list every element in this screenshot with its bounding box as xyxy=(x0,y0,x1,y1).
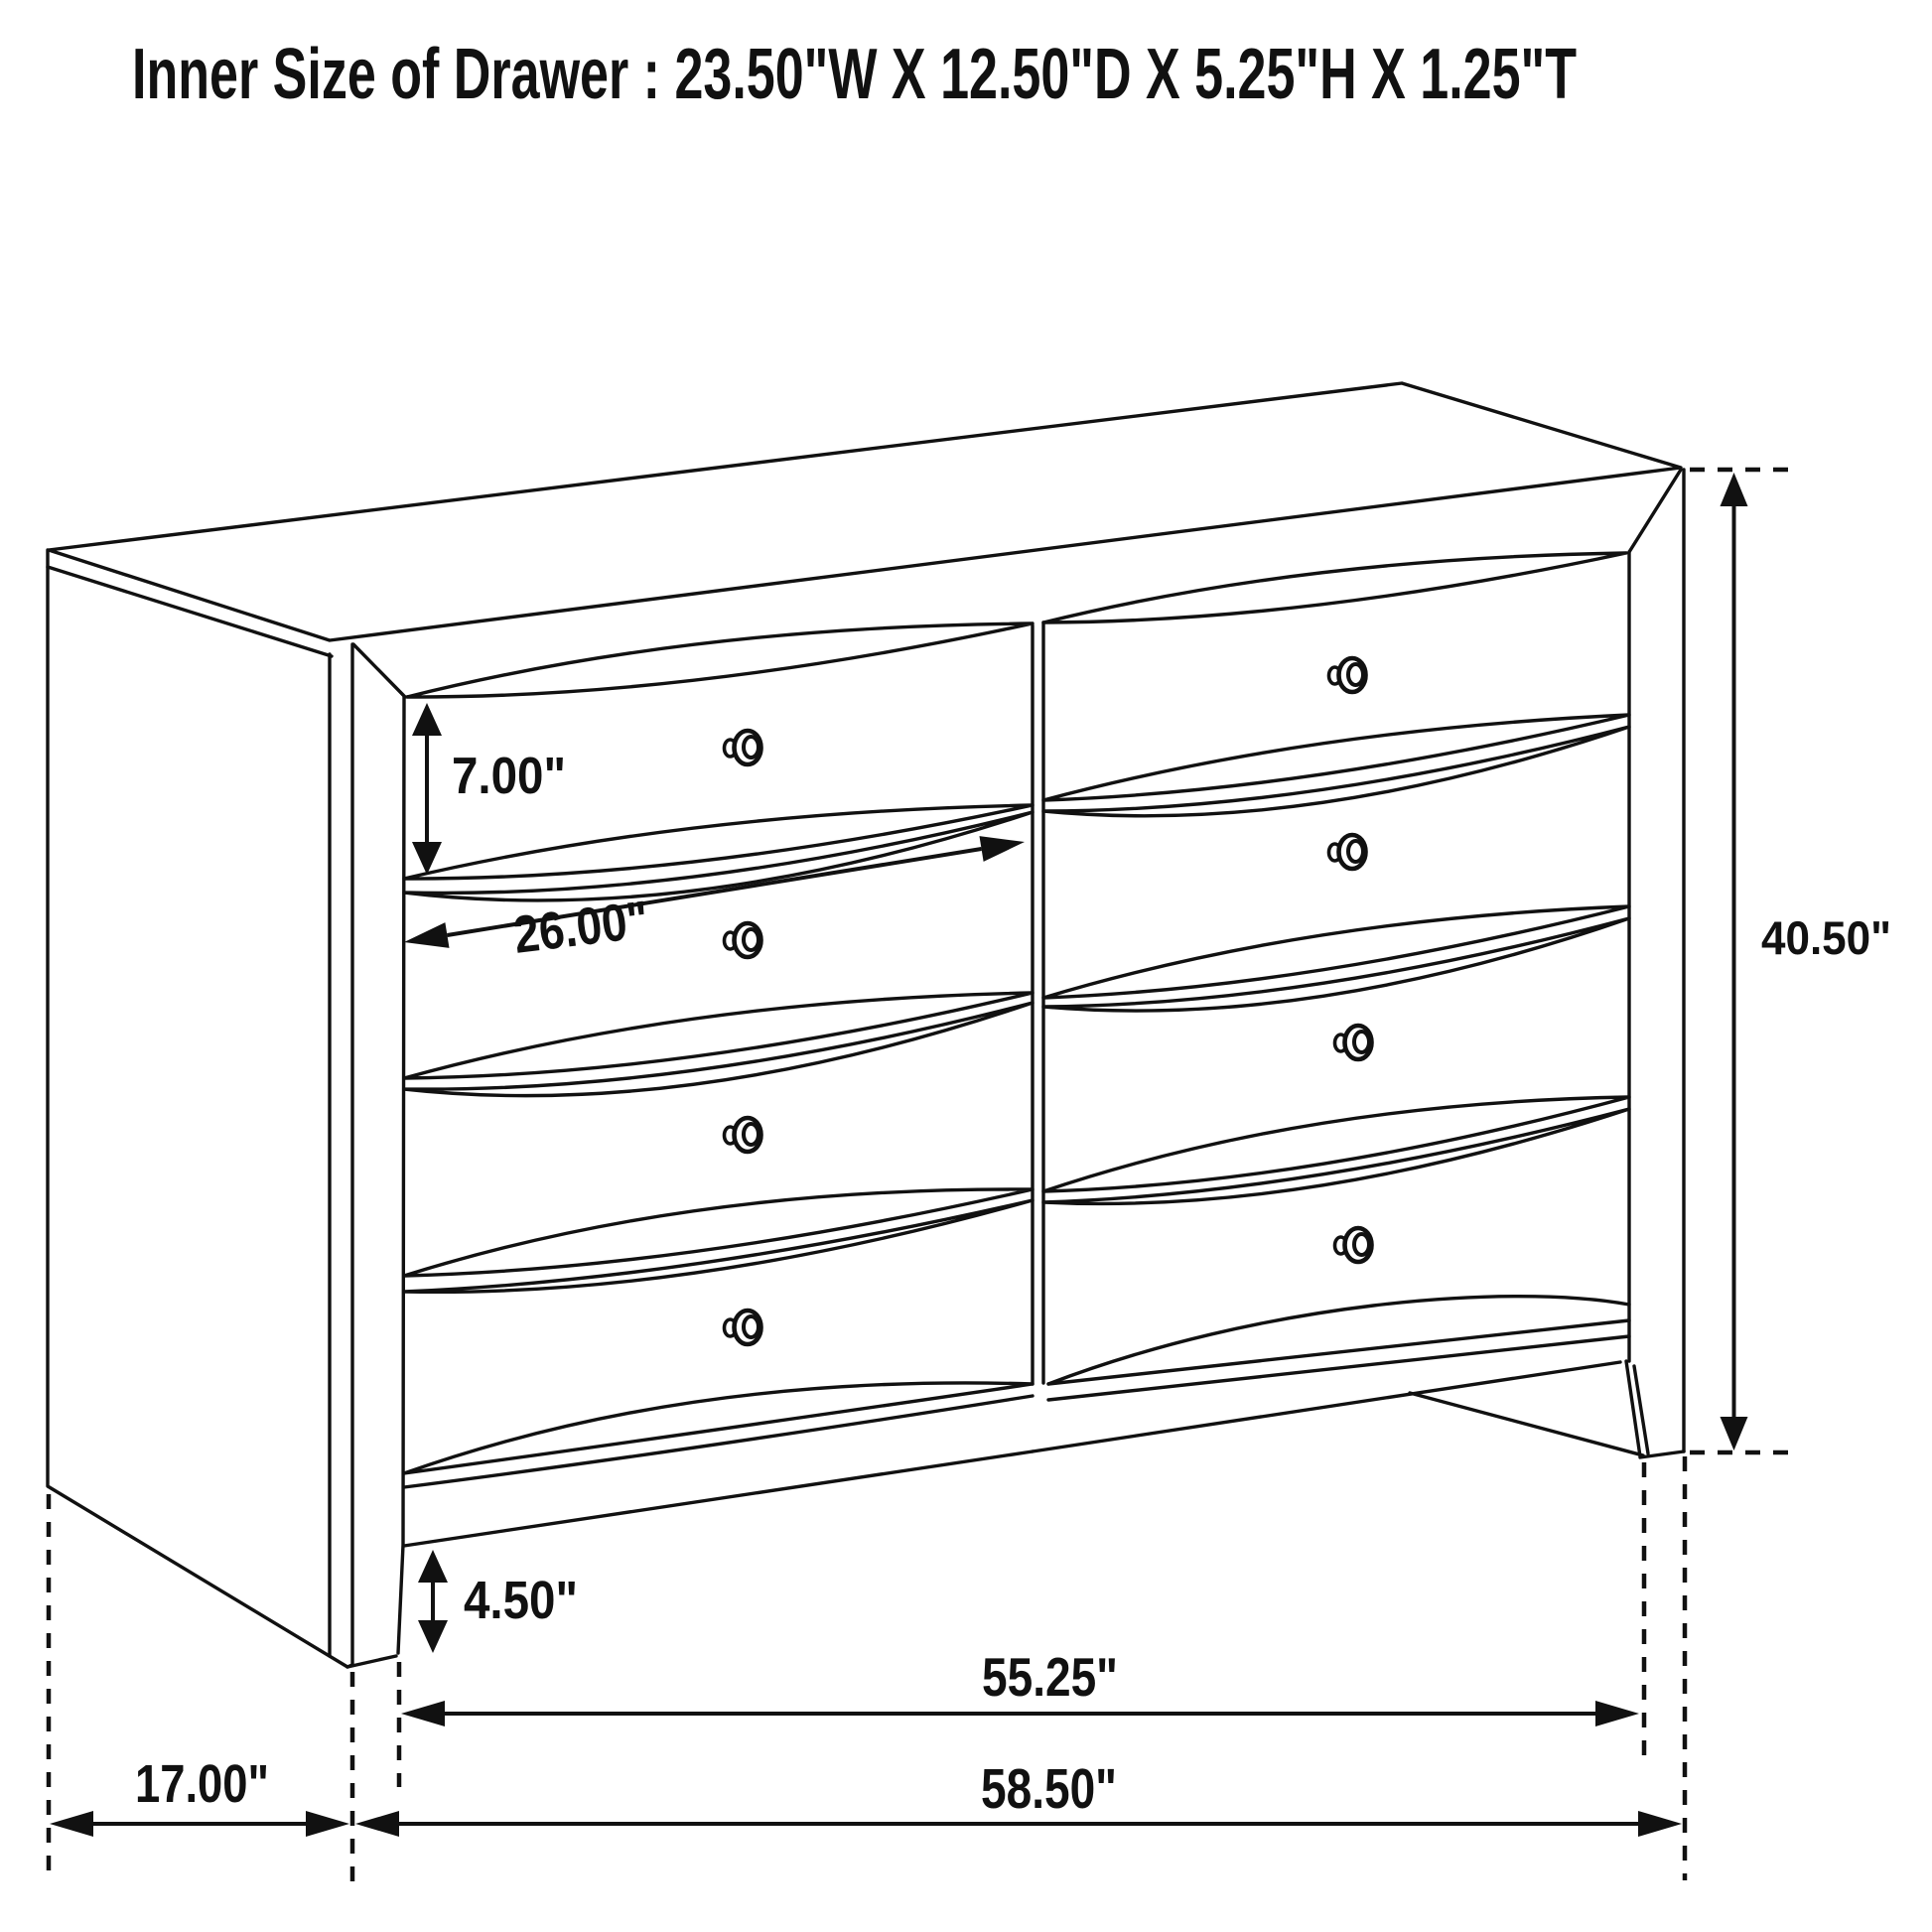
svg-text:Inner Size of Drawer : 23.50"W: Inner Size of Drawer : 23.50"W X 12.50"D… xyxy=(132,35,1577,114)
svg-text:7.00": 7.00" xyxy=(452,748,566,805)
svg-text:58.50": 58.50" xyxy=(981,1757,1117,1821)
svg-text:40.50": 40.50" xyxy=(1761,911,1891,964)
svg-text:55.25": 55.25" xyxy=(982,1646,1118,1708)
svg-text:17.00": 17.00" xyxy=(135,1754,269,1814)
svg-text:4.50": 4.50" xyxy=(464,1571,578,1630)
